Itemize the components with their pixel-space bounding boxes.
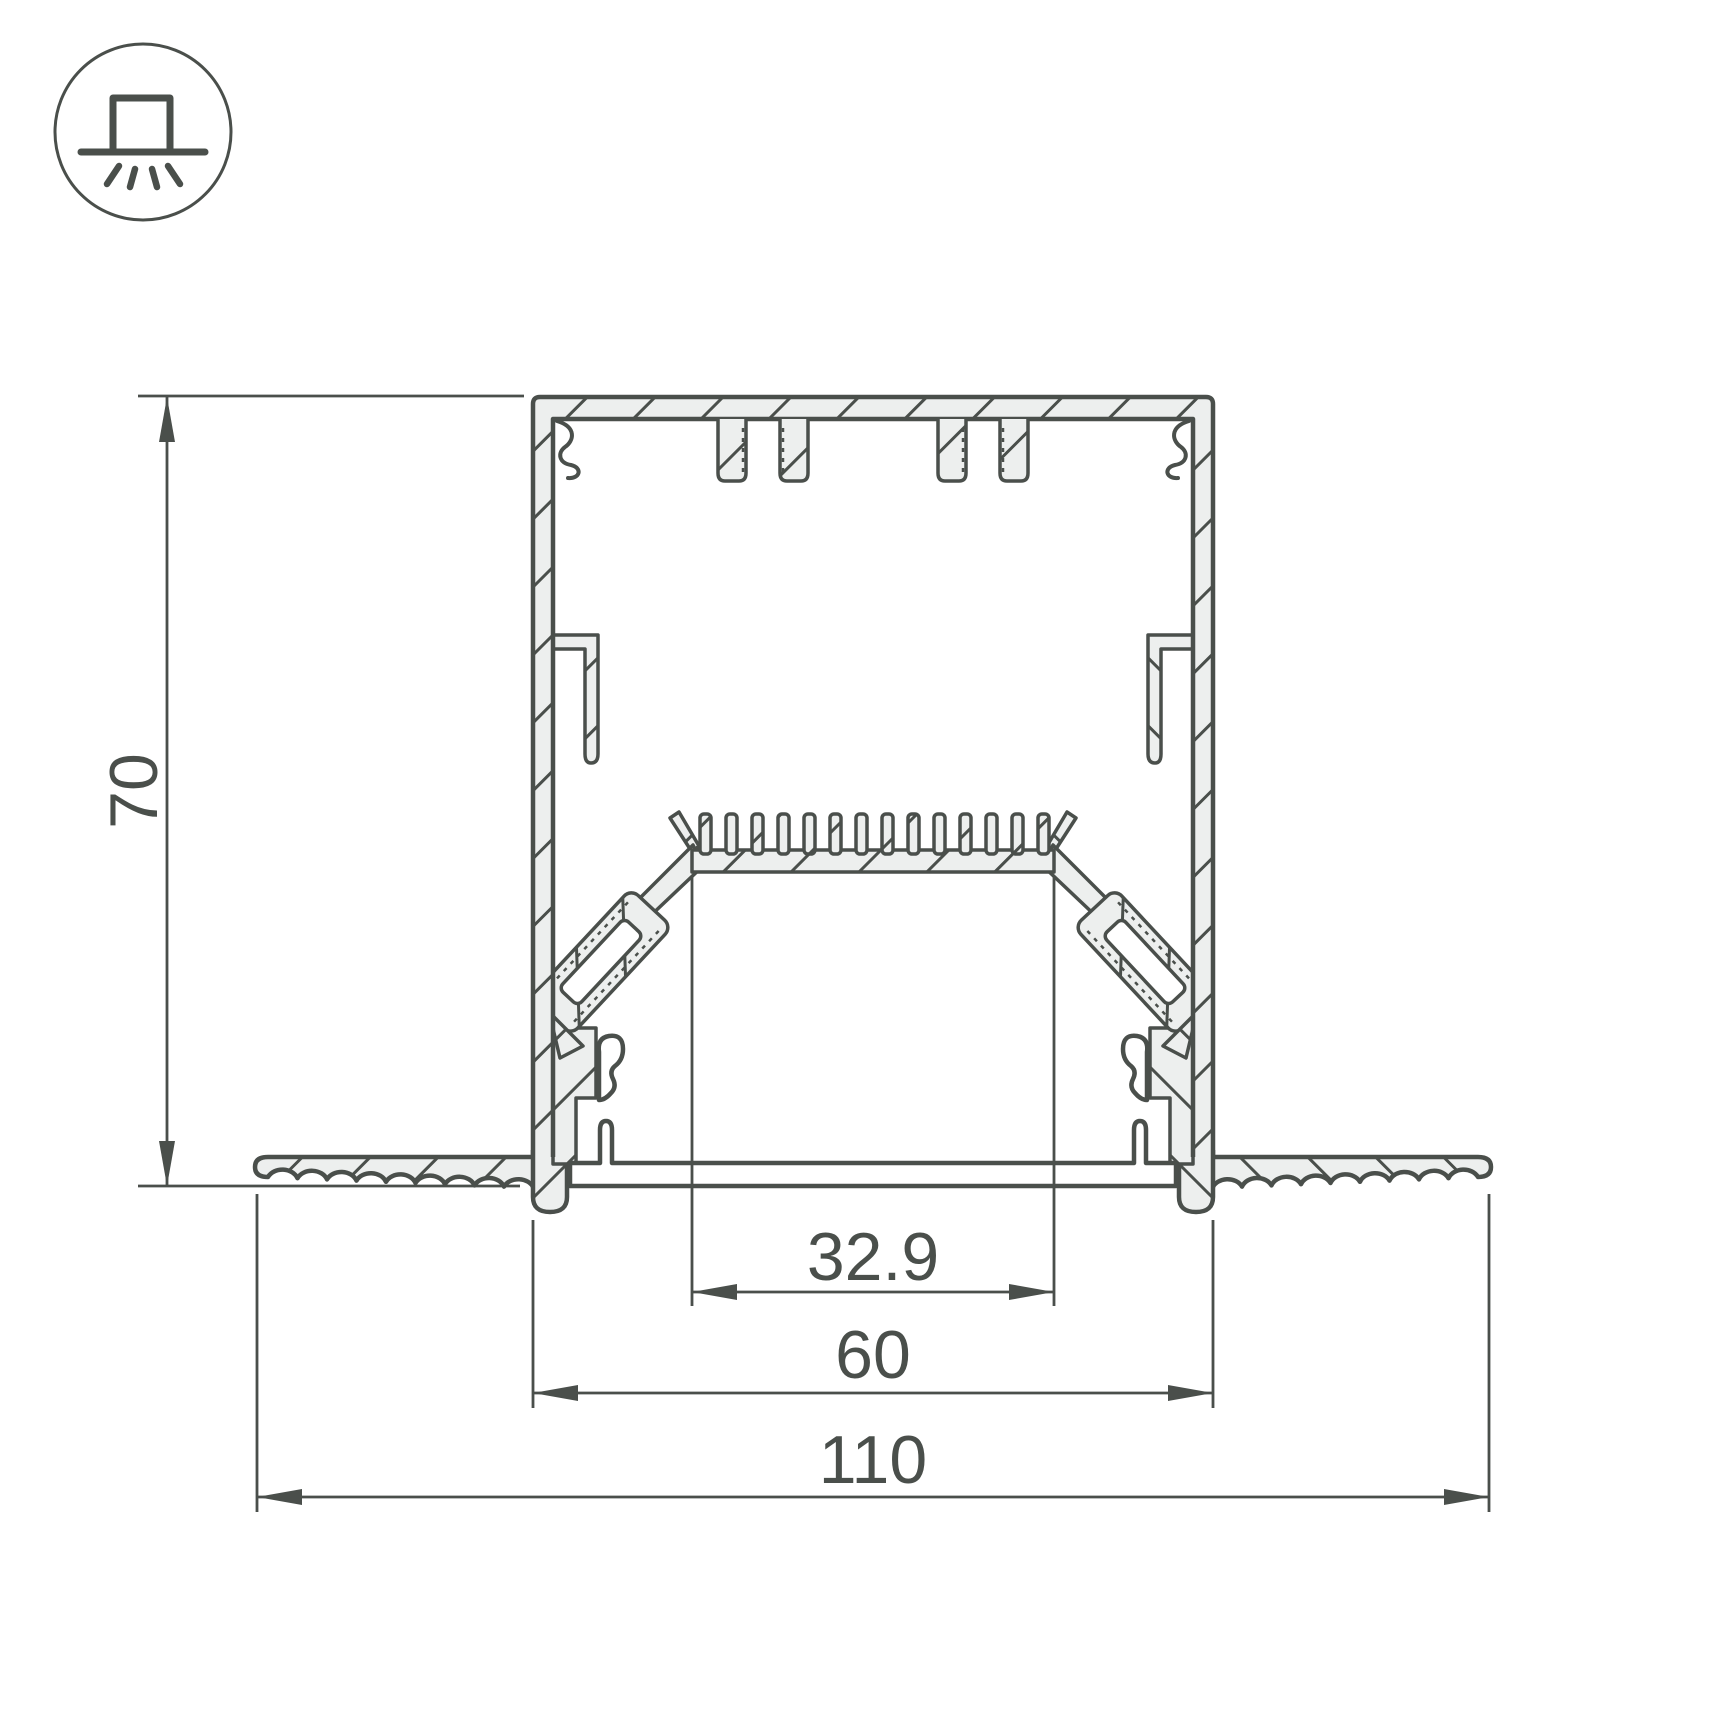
dimension-opening: 32.9 (692, 876, 1054, 1306)
arrowhead (1009, 1284, 1054, 1300)
diffuser-cover (570, 1121, 1176, 1186)
arrowhead (159, 397, 175, 442)
dimension-body-width-label: 60 (835, 1317, 911, 1393)
corner-hook (557, 421, 579, 478)
profile-side-left (255, 421, 703, 1212)
arrowhead (533, 1385, 578, 1401)
technical-drawing-page: 70 32.9 60 110 (0, 0, 1720, 1720)
profile-cross-section-drawing: 70 32.9 60 110 (0, 0, 1720, 1720)
dimension-height-label: 70 (96, 753, 172, 829)
dimension-height: 70 (96, 396, 524, 1186)
icon-fixture-box (113, 98, 170, 152)
arrowhead (1168, 1385, 1213, 1401)
arrowhead (692, 1284, 737, 1300)
dimension-overall-width-label: 110 (819, 1422, 927, 1498)
heatsink (692, 814, 1054, 872)
arrowhead (1444, 1489, 1489, 1505)
screw-channel-tabs (718, 419, 1028, 481)
flange-wing (255, 1157, 534, 1188)
icon-circle (55, 44, 231, 220)
recessed-mount-icon (55, 44, 231, 220)
heatsink-fins (700, 814, 1049, 854)
dimension-opening-label: 32.9 (807, 1219, 939, 1295)
mid-wall-rib (553, 635, 598, 763)
profile-shell (533, 397, 1213, 1157)
end-clip (599, 1036, 623, 1100)
profile-side-right (1043, 421, 1491, 1212)
heatsink-plate (692, 850, 1054, 872)
arrowhead (159, 1141, 175, 1186)
arrowhead (257, 1489, 302, 1505)
icon-light-rays (107, 166, 180, 187)
